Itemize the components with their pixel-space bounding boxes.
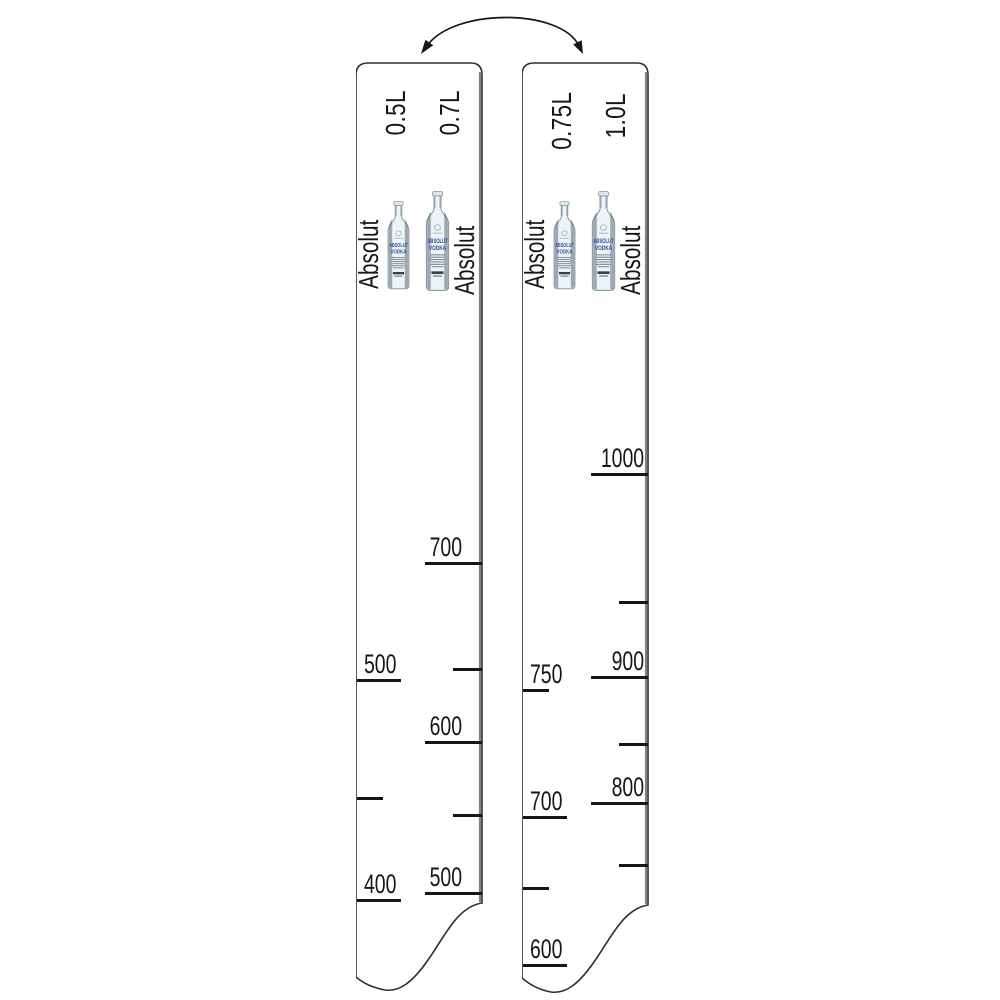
scale-value-label: 800 <box>612 774 644 801</box>
scale-tick-700ml: 700 <box>523 816 567 819</box>
scale-tick-700ml: 700 <box>425 562 482 565</box>
ruler-strip-0.5L-0.7L: 0.5L 0.7L Absolut Absolut 50040070060050… <box>356 62 483 1000</box>
scale-tick-800ml: 800 <box>591 802 648 805</box>
scale-tick-750ml: 750 <box>523 689 549 692</box>
ruler-strip-0.75L-1.0L: 0.75L 1.0L Absolut Absolut 7507006001000… <box>522 62 649 1000</box>
scale-tick <box>619 864 648 867</box>
scale-tick-900ml: 900 <box>591 676 648 679</box>
scale-value-label: 1000 <box>601 445 644 472</box>
scale-tick-1000ml: 1000 <box>591 473 648 476</box>
bar-ruler-illustration: 0.5L 0.7L Absolut Absolut 50040070060050… <box>0 0 1000 1000</box>
scale-tick-600ml: 600 <box>425 741 482 744</box>
scale-value-label: 600 <box>530 936 562 963</box>
scale-tick <box>453 668 482 671</box>
scale-tick-600ml: 600 <box>523 964 567 967</box>
scale-value-label: 400 <box>364 871 396 898</box>
scale-tick <box>523 887 549 890</box>
scale-marks: 7507006001000900800 <box>522 62 649 1000</box>
scale-value-label: 750 <box>530 661 562 688</box>
scale-value-label: 600 <box>430 713 462 740</box>
scale-value-label: 700 <box>430 534 462 561</box>
scale-tick-500ml: 500 <box>425 892 482 895</box>
scale-marks: 500400700600500 <box>356 62 483 1000</box>
scale-tick <box>453 814 482 817</box>
scale-tick-500ml: 500 <box>357 679 401 682</box>
scale-tick <box>619 743 648 746</box>
scale-value-label: 500 <box>364 651 396 678</box>
scale-value-label: 500 <box>430 864 462 891</box>
scale-value-label: 700 <box>530 788 562 815</box>
scale-value-label: 900 <box>612 648 644 675</box>
scale-tick <box>357 797 383 800</box>
scale-tick <box>619 601 648 604</box>
scale-tick-400ml: 400 <box>357 899 401 902</box>
